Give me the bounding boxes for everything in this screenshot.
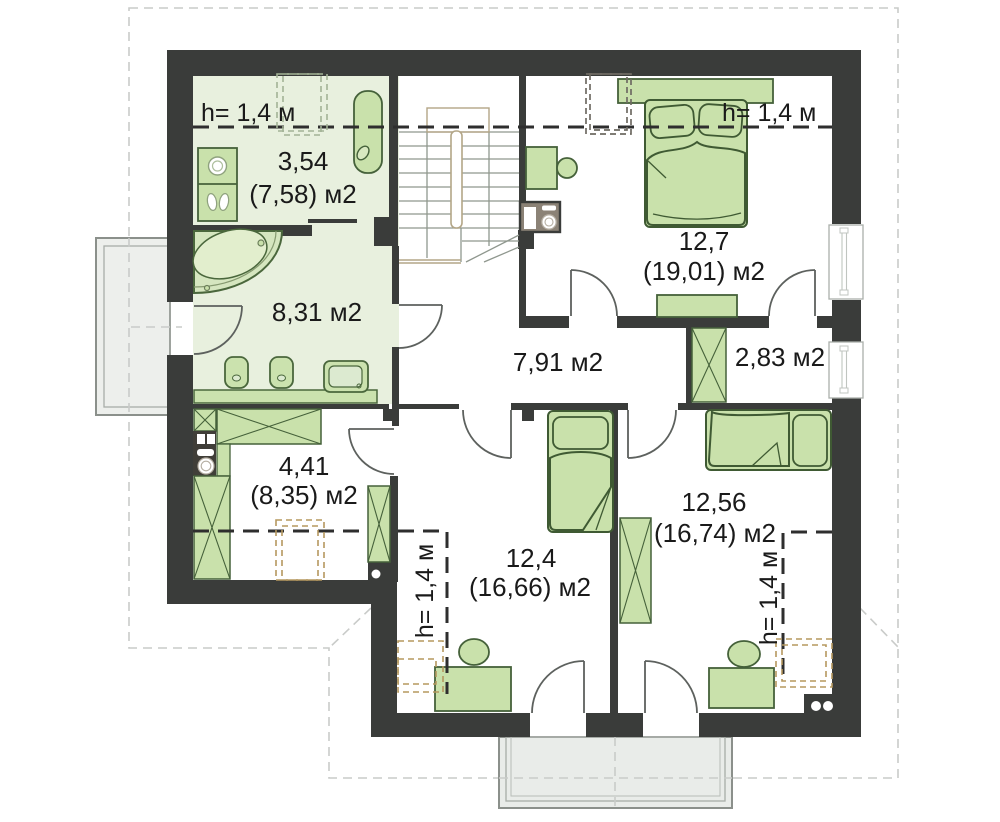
svg-text:h= 1,4 м: h= 1,4 м [722,99,816,127]
svg-text:(16,74) м2: (16,74) м2 [654,518,776,548]
svg-text:h= 1,4 м: h= 1,4 м [411,544,439,638]
svg-text:7,91 м2: 7,91 м2 [513,347,603,377]
svg-text:2,83 м2: 2,83 м2 [735,342,825,372]
svg-text:4,41: 4,41 [279,451,330,481]
svg-text:(8,35) м2: (8,35) м2 [250,480,357,510]
svg-text:12,4: 12,4 [506,543,557,573]
svg-text:12,56: 12,56 [681,487,746,517]
svg-text:h= 1,4 м: h= 1,4 м [755,551,783,645]
svg-text:12,7: 12,7 [679,226,730,256]
svg-text:(7,58) м2: (7,58) м2 [249,179,356,209]
svg-text:h= 1,4 м: h= 1,4 м [201,99,295,127]
svg-text:(19,01) м2: (19,01) м2 [643,256,765,286]
svg-text:3,54: 3,54 [278,146,329,176]
svg-text:8,31 м2: 8,31 м2 [272,297,362,327]
svg-text:(16,66) м2: (16,66) м2 [469,572,591,602]
